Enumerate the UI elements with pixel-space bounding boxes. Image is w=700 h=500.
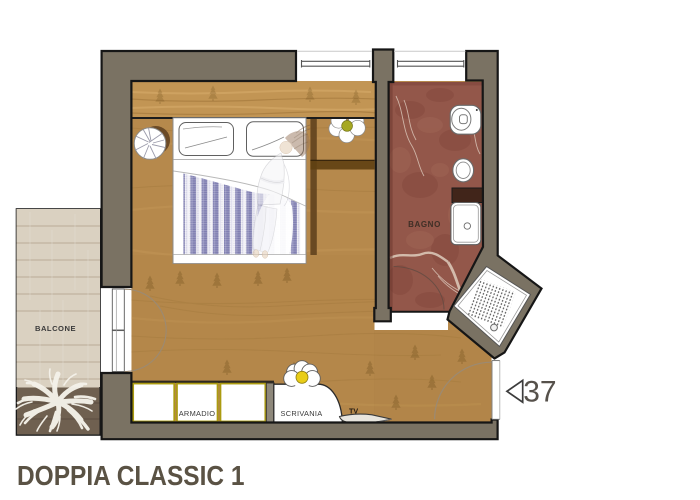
svg-text:BAGNO: BAGNO (408, 220, 441, 229)
svg-text:37: 37 (523, 376, 556, 409)
svg-text:SCRIVANIA: SCRIVANIA (281, 409, 323, 418)
svg-text:ARMADIO: ARMADIO (179, 409, 216, 418)
svg-text:DOPPIA CLASSIC 1: DOPPIA CLASSIC 1 (17, 460, 245, 491)
svg-text:BALCONE: BALCONE (35, 324, 76, 333)
